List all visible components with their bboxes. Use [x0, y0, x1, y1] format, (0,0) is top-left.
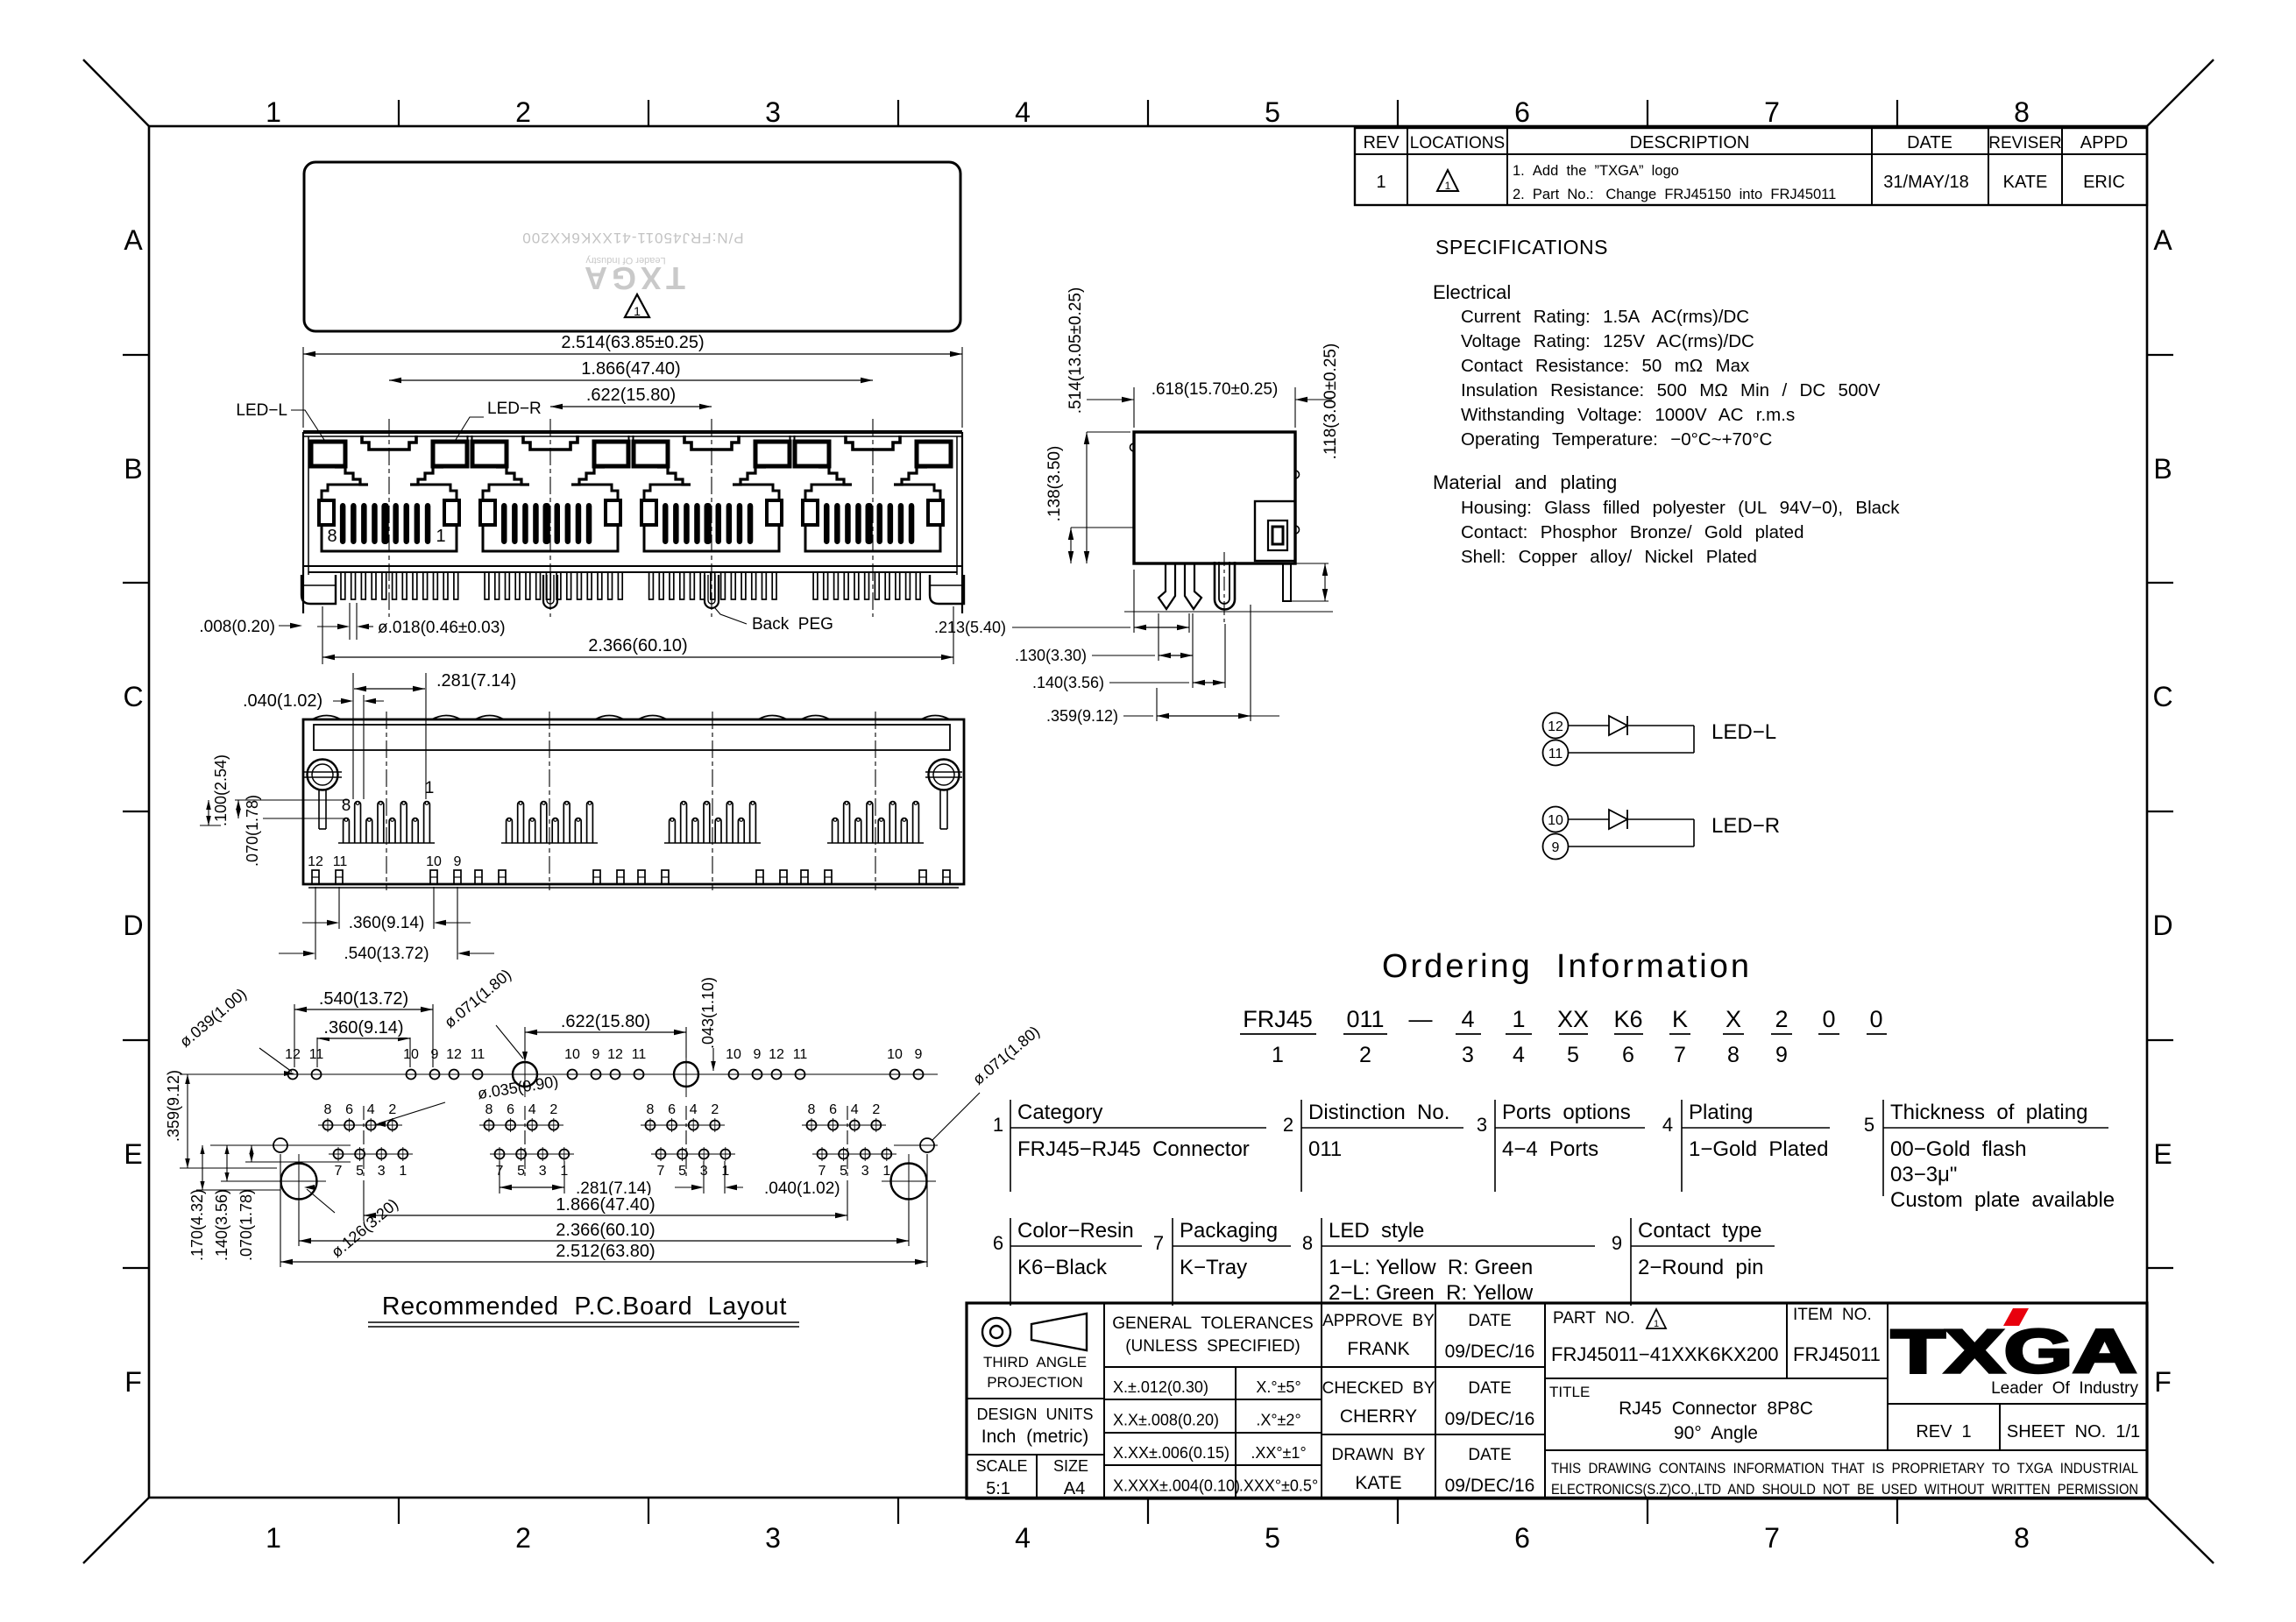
svg-text:.140(3.56): .140(3.56) [213, 1189, 230, 1261]
svg-text:10: 10 [726, 1047, 741, 1062]
svg-text:10: 10 [403, 1047, 419, 1062]
svg-text:X.±.012(0.30): X.±.012(0.30) [1113, 1378, 1208, 1396]
svg-text:.XX°±1°: .XX°±1° [1251, 1444, 1306, 1462]
svg-text:3: 3 [378, 1164, 386, 1179]
svg-text:Operating Temperature: −0°C~: Operating Temperature: −0°C~+70°C [1461, 429, 1773, 450]
svg-text:Shell: Copper alloy/ Nickel: Shell: Copper alloy/ Nickel Plated [1461, 547, 1757, 567]
svg-text:7: 7 [1674, 1043, 1686, 1067]
svg-text:FRJ45−RJ45 Connector: FRJ45−RJ45 Connector [1017, 1137, 1250, 1161]
svg-text:7: 7 [1153, 1232, 1164, 1254]
svg-text:1: 1 [882, 1164, 890, 1179]
svg-text:.540(13.72): .540(13.72) [344, 945, 429, 963]
svg-text:8: 8 [2014, 96, 2030, 128]
svg-text:F: F [2154, 1366, 2172, 1398]
svg-text:D: D [123, 910, 143, 941]
svg-text:4: 4 [1513, 1043, 1525, 1067]
svg-text:.281(7.14): .281(7.14) [436, 671, 516, 691]
svg-text:—: — [1409, 1006, 1433, 1032]
svg-text:Current Rating: 1.5A AC(rms: Current Rating: 1.5A AC(rms)/DC [1461, 307, 1749, 327]
svg-text:1: 1 [993, 1114, 1003, 1136]
svg-text:8: 8 [485, 1102, 493, 1117]
svg-text:FRJ45011: FRJ45011 [1793, 1343, 1881, 1365]
svg-text:3: 3 [1462, 1043, 1474, 1067]
svg-text:Category: Category [1017, 1101, 1102, 1124]
svg-text:Back PEG: Back PEG [752, 615, 833, 634]
svg-text:Leader Of Industry: Leader Of Industry [1991, 1379, 2138, 1398]
svg-text:1: 1 [1272, 1043, 1284, 1067]
svg-text:ELECTRONICS(S.Z)CO.,LTD AND: ELECTRONICS(S.Z)CO.,LTD AND SHOULD NOT B… [1551, 1482, 2138, 1498]
svg-text:7: 7 [657, 1164, 665, 1179]
svg-text:12: 12 [446, 1047, 462, 1062]
svg-text:1: 1 [1445, 180, 1451, 192]
svg-text:REV 1: REV 1 [1916, 1422, 1971, 1441]
svg-text:9: 9 [1612, 1232, 1622, 1254]
svg-text:K6: K6 [1613, 1006, 1642, 1032]
svg-text:GENERAL TOLERANCES: GENERAL TOLERANCES [1112, 1314, 1313, 1333]
svg-text:C: C [2152, 681, 2172, 712]
svg-text:00−Gold flash: 00−Gold flash [1890, 1137, 2026, 1161]
svg-text:.070(1.78): .070(1.78) [237, 1189, 255, 1261]
svg-text:Voltage Rating: 125V AC(rms: Voltage Rating: 125V AC(rms)/DC [1461, 331, 1754, 351]
svg-text:2: 2 [872, 1102, 880, 1117]
svg-text:X.°±5°: X.°±5° [1256, 1378, 1300, 1396]
svg-text:Housing: Glass filled polye: Housing: Glass filled polyester (UL 94V−… [1461, 498, 1900, 518]
svg-text:12: 12 [1548, 719, 1563, 734]
svg-text:10: 10 [426, 854, 442, 869]
svg-text:FRANK: FRANK [1347, 1339, 1409, 1359]
svg-text:PROJECTION: PROJECTION [987, 1374, 1083, 1391]
svg-text:4: 4 [367, 1102, 375, 1117]
svg-text:LED−L: LED−L [1711, 720, 1776, 744]
svg-text:E: E [2153, 1138, 2172, 1170]
svg-text:X.XXX±.004(0.10): X.XXX±.004(0.10) [1113, 1477, 1240, 1495]
svg-text:Withstanding Voltage: 1000V: Withstanding Voltage: 1000V AC r.m.s [1461, 405, 1795, 425]
svg-text:F: F [124, 1366, 142, 1398]
svg-text:2. Part No.: Change FRJ45: 2. Part No.: Change FRJ45150 into FRJ450… [1513, 187, 1836, 202]
svg-text:DRAWN BY: DRAWN BY [1332, 1446, 1426, 1464]
svg-text:SCALE: SCALE [975, 1457, 1027, 1475]
svg-text:SIZE: SIZE [1053, 1457, 1088, 1475]
svg-text:SPECIFICATIONS: SPECIFICATIONS [1435, 236, 1608, 259]
svg-text:K6−Black: K6−Black [1017, 1256, 1108, 1279]
svg-text:FRJ45011−41XXK6KX200: FRJ45011−41XXK6KX200 [1551, 1343, 1779, 1365]
svg-text:DATE: DATE [1468, 1446, 1511, 1464]
svg-text:5: 5 [1265, 1522, 1280, 1554]
svg-text:03−3μ": 03−3μ" [1890, 1163, 1957, 1186]
svg-text:1: 1 [266, 1522, 281, 1554]
svg-text:90° Angle: 90° Angle [1674, 1423, 1758, 1443]
svg-text:.213(5.40): .213(5.40) [934, 619, 1006, 636]
svg-text:2.512(63.80): 2.512(63.80) [556, 1242, 655, 1261]
svg-text:1. Add the ”TXGA” logo: 1. Add the ”TXGA” logo [1513, 163, 1679, 179]
svg-text:DESCRIPTION: DESCRIPTION [1630, 133, 1750, 152]
svg-text:7: 7 [1764, 96, 1780, 128]
svg-text:.360(9.14): .360(9.14) [323, 1018, 403, 1038]
svg-text:(UNLESS SPECIFIED): (UNLESS SPECIFIED) [1125, 1337, 1300, 1356]
svg-text:7: 7 [1764, 1522, 1780, 1554]
svg-text:9: 9 [1775, 1043, 1788, 1067]
svg-text:LOCATIONS: LOCATIONS [1410, 134, 1505, 152]
svg-text:K−Tray: K−Tray [1180, 1256, 1247, 1279]
svg-text:1.866(47.40): 1.866(47.40) [581, 359, 680, 379]
svg-text:9: 9 [431, 1047, 439, 1062]
svg-text:C: C [123, 681, 143, 712]
svg-text:.622(15.80): .622(15.80) [586, 386, 676, 405]
svg-text:3: 3 [765, 96, 781, 128]
svg-text:12: 12 [285, 1047, 301, 1062]
svg-text:9: 9 [915, 1047, 923, 1062]
svg-text:09/DEC/16: 09/DEC/16 [1445, 1409, 1535, 1429]
svg-text:TITLE: TITLE [1549, 1384, 1590, 1400]
svg-text:8: 8 [324, 1102, 332, 1117]
svg-text:1: 1 [399, 1164, 407, 1179]
svg-text:011: 011 [1346, 1006, 1384, 1032]
svg-text:.040(1.02): .040(1.02) [764, 1179, 840, 1198]
svg-text:Custom plate available: Custom plate available [1890, 1188, 2115, 1212]
svg-text:.100(2.54): .100(2.54) [212, 754, 230, 826]
svg-text:Contact: Phosphor Bronze/ G: Contact: Phosphor Bronze/ Gold plated [1461, 522, 1803, 542]
svg-text:6: 6 [1514, 96, 1530, 128]
svg-text:A: A [124, 224, 143, 256]
svg-text:TXGA: TXGA [1891, 1317, 2137, 1385]
svg-text:6: 6 [993, 1232, 1003, 1254]
svg-text:.622(15.80): .622(15.80) [561, 1012, 650, 1031]
svg-text:10: 10 [1548, 813, 1563, 828]
svg-text:A: A [2153, 224, 2172, 256]
svg-text:11: 11 [793, 1047, 808, 1062]
svg-text:8: 8 [2014, 1522, 2030, 1554]
svg-text:Distinction No.: Distinction No. [1308, 1101, 1449, 1124]
svg-text:Packaging: Packaging [1180, 1219, 1278, 1243]
svg-text:2.514(63.85±0.25): 2.514(63.85±0.25) [561, 333, 704, 352]
svg-text:6: 6 [1622, 1043, 1634, 1067]
svg-text:09/DEC/16: 09/DEC/16 [1445, 1342, 1535, 1362]
svg-text:12: 12 [308, 854, 323, 869]
svg-text:2−L: Green R: Yellow: 2−L: Green R: Yellow [1329, 1281, 1534, 1305]
svg-text:6: 6 [829, 1102, 837, 1117]
svg-text:LED−R: LED−R [487, 400, 542, 418]
svg-text:5: 5 [1265, 96, 1280, 128]
svg-text:2: 2 [1775, 1006, 1788, 1032]
svg-text:6: 6 [668, 1102, 676, 1117]
svg-text:Ports options: Ports options [1502, 1101, 1631, 1124]
svg-text:1: 1 [1376, 173, 1385, 192]
svg-text:2: 2 [1283, 1114, 1293, 1136]
svg-text:4: 4 [1015, 96, 1031, 128]
svg-text:2.366(60.10): 2.366(60.10) [556, 1221, 655, 1240]
svg-text:APPD: APPD [2080, 133, 2128, 152]
svg-text:KATE: KATE [1355, 1473, 1401, 1493]
svg-text:7: 7 [818, 1164, 826, 1179]
svg-text:XX: XX [1557, 1006, 1589, 1032]
svg-text:Electrical: Electrical [1433, 281, 1511, 303]
svg-text:KATE: KATE [2003, 173, 2048, 192]
svg-text:Material and plating: Material and plating [1433, 471, 1617, 493]
svg-text:1: 1 [634, 304, 641, 318]
svg-text:1−Gold Plated: 1−Gold Plated [1689, 1137, 1828, 1161]
svg-text:CHECKED BY: CHECKED BY [1322, 1379, 1435, 1398]
svg-text:D: D [2152, 910, 2172, 941]
svg-text:12: 12 [769, 1047, 784, 1062]
svg-text:LED style: LED style [1329, 1219, 1424, 1243]
svg-text:ø.018(0.46±0.03): ø.018(0.46±0.03) [378, 619, 506, 637]
svg-text:2: 2 [515, 96, 531, 128]
svg-text:8: 8 [1302, 1232, 1313, 1254]
svg-text:.618(15.70±0.25): .618(15.70±0.25) [1152, 380, 1279, 399]
svg-text:Plating: Plating [1689, 1101, 1753, 1124]
svg-text:6: 6 [1514, 1522, 1530, 1554]
svg-text:THIS DRAWING CONTAINS INFOR: THIS DRAWING CONTAINS INFORMATION THAT I… [1551, 1461, 2138, 1477]
svg-text:ERIC: ERIC [2083, 173, 2125, 192]
svg-text:5: 5 [1864, 1114, 1874, 1136]
svg-text:.170(4.32): .170(4.32) [188, 1189, 206, 1261]
svg-text:TXGA: TXGA [580, 260, 685, 296]
svg-text:11: 11 [632, 1047, 647, 1062]
svg-text:Contact Resistance: 50 mΩ: Contact Resistance: 50 mΩ Max [1461, 356, 1750, 376]
svg-text:LED−L: LED−L [236, 401, 287, 420]
svg-text:1−L: Yellow R: Green: 1−L: Yellow R: Green [1329, 1256, 1533, 1279]
svg-text:.XXX°±0.5°: .XXX°±0.5° [1239, 1477, 1318, 1495]
svg-text:11: 11 [1548, 747, 1563, 761]
svg-text:Ordering Information: Ordering Information [1382, 948, 1752, 985]
svg-text:LED−R: LED−R [1711, 814, 1780, 838]
svg-text:9: 9 [754, 1047, 762, 1062]
svg-text:9: 9 [592, 1047, 600, 1062]
svg-text:APPROVE BY: APPROVE BY [1322, 1312, 1435, 1330]
svg-text:8: 8 [647, 1102, 655, 1117]
svg-text:6: 6 [507, 1102, 514, 1117]
svg-text:2−Round pin: 2−Round pin [1638, 1256, 1763, 1279]
svg-text:.070(1.78): .070(1.78) [244, 795, 261, 867]
svg-text:CHERRY: CHERRY [1340, 1406, 1417, 1427]
svg-text:.043(1.10): .043(1.10) [699, 977, 717, 1049]
svg-text:4: 4 [851, 1102, 859, 1117]
svg-text:.359(9.12): .359(9.12) [1046, 707, 1118, 725]
svg-text:9: 9 [454, 854, 462, 869]
svg-text:2: 2 [711, 1102, 719, 1117]
svg-text:9: 9 [1552, 840, 1560, 855]
svg-text:5: 5 [356, 1164, 364, 1179]
svg-text:8: 8 [1727, 1043, 1740, 1067]
svg-text:11: 11 [333, 854, 348, 869]
svg-text:4: 4 [1015, 1522, 1031, 1554]
svg-text:09/DEC/16: 09/DEC/16 [1445, 1476, 1535, 1496]
svg-text:Thickness of plating: Thickness of plating [1890, 1101, 2087, 1124]
svg-text:PART NO.: PART NO. [1553, 1309, 1634, 1328]
svg-text:3: 3 [1477, 1114, 1487, 1136]
svg-text:.540(13.72): .540(13.72) [319, 989, 408, 1009]
svg-text:X.X±.008(0.20): X.X±.008(0.20) [1113, 1412, 1219, 1429]
svg-text:Insulation Resistance: 500: Insulation Resistance: 500 MΩ Min / DC 5… [1461, 380, 1881, 400]
svg-text:Recommended P.C.Board Layout: Recommended P.C.Board Layout [382, 1293, 787, 1321]
svg-text:DATE: DATE [1468, 1312, 1511, 1330]
svg-text:4: 4 [1461, 1006, 1474, 1032]
svg-text:X: X [1726, 1006, 1741, 1032]
svg-text:5:1: 5:1 [986, 1479, 1010, 1498]
svg-text:4−4 Ports: 4−4 Ports [1502, 1137, 1598, 1161]
svg-text:4: 4 [528, 1102, 536, 1117]
svg-text:8: 8 [327, 527, 337, 546]
svg-text:.140(3.56): .140(3.56) [1032, 674, 1104, 691]
svg-text:2: 2 [549, 1102, 557, 1117]
svg-text:B: B [2153, 453, 2172, 485]
svg-text:REVISER: REVISER [1988, 134, 2061, 152]
svg-text:5: 5 [840, 1164, 847, 1179]
svg-text:2.366(60.10): 2.366(60.10) [588, 636, 687, 655]
svg-text:.040(1.02): .040(1.02) [243, 691, 322, 711]
svg-text:.138(3.50): .138(3.50) [1045, 446, 1064, 522]
svg-text:3: 3 [765, 1522, 781, 1554]
svg-text:DATE: DATE [1907, 133, 1952, 152]
svg-text:THIRD ANGLE: THIRD ANGLE [983, 1354, 1087, 1371]
svg-text:4: 4 [1662, 1114, 1673, 1136]
svg-text:1.866(47.40): 1.866(47.40) [556, 1195, 655, 1215]
svg-text:1: 1 [266, 96, 281, 128]
svg-text:011: 011 [1308, 1137, 1342, 1161]
svg-text:7: 7 [335, 1164, 343, 1179]
svg-text:2: 2 [388, 1102, 396, 1117]
svg-text:8: 8 [808, 1102, 816, 1117]
svg-text:B: B [124, 453, 142, 485]
svg-text:3: 3 [539, 1164, 547, 1179]
svg-text:Inch (metric): Inch (metric) [981, 1427, 1089, 1447]
svg-text:FRJ45: FRJ45 [1243, 1006, 1313, 1032]
svg-text:5: 5 [678, 1164, 686, 1179]
svg-text:1: 1 [721, 1164, 729, 1179]
svg-text:8: 8 [342, 797, 351, 815]
svg-text:DESIGN UNITS: DESIGN UNITS [976, 1406, 1093, 1423]
svg-text:0: 0 [1822, 1006, 1835, 1032]
svg-text:DATE: DATE [1468, 1379, 1511, 1398]
svg-text:.118(3.00±0.25): .118(3.00±0.25) [1322, 344, 1340, 460]
svg-text:2: 2 [515, 1522, 531, 1554]
svg-text:.008(0.20): .008(0.20) [199, 618, 275, 636]
svg-text:E: E [124, 1138, 142, 1170]
svg-text:.360(9.14): .360(9.14) [349, 914, 425, 932]
svg-text:1: 1 [1512, 1006, 1525, 1032]
svg-text:5: 5 [517, 1164, 525, 1179]
svg-text:1: 1 [436, 527, 445, 546]
svg-text:P/N:FRJ45011-41XXK6KX200: P/N:FRJ45011-41XXK6KX200 [521, 230, 743, 246]
svg-text:Contact type: Contact type [1638, 1219, 1761, 1243]
svg-text:11: 11 [471, 1047, 485, 1062]
svg-text:A4: A4 [1064, 1479, 1085, 1498]
svg-text:.X°±2°: .X°±2° [1256, 1412, 1300, 1429]
svg-text:2: 2 [1359, 1043, 1371, 1067]
svg-text:6: 6 [345, 1102, 353, 1117]
svg-text:11: 11 [309, 1047, 324, 1062]
svg-text:4: 4 [690, 1102, 698, 1117]
svg-text:SHEET NO. 1/1: SHEET NO. 1/1 [2007, 1422, 2140, 1441]
svg-text:REV: REV [1363, 133, 1400, 152]
svg-text:.359(9.12): .359(9.12) [165, 1070, 182, 1142]
svg-text:31/MAY/18: 31/MAY/18 [1883, 173, 1968, 192]
svg-text:10: 10 [887, 1047, 903, 1062]
svg-text:1: 1 [1654, 1319, 1659, 1329]
svg-text:5: 5 [1567, 1043, 1579, 1067]
svg-text:10: 10 [564, 1047, 580, 1062]
svg-text:K: K [1672, 1006, 1688, 1032]
svg-text:.514(13.05±0.25): .514(13.05±0.25) [1067, 287, 1085, 414]
svg-text:0: 0 [1869, 1006, 1882, 1032]
svg-text:Color−Resin: Color−Resin [1017, 1219, 1134, 1243]
svg-text:12: 12 [607, 1047, 623, 1062]
svg-text:X.XX±.006(0.15): X.XX±.006(0.15) [1113, 1444, 1229, 1462]
svg-text:RJ45 Connector 8P8C: RJ45 Connector 8P8C [1619, 1399, 1813, 1419]
svg-text:ITEM NO.: ITEM NO. [1793, 1306, 1872, 1324]
svg-text:.130(3.30): .130(3.30) [1015, 647, 1087, 664]
svg-text:3: 3 [861, 1164, 869, 1179]
